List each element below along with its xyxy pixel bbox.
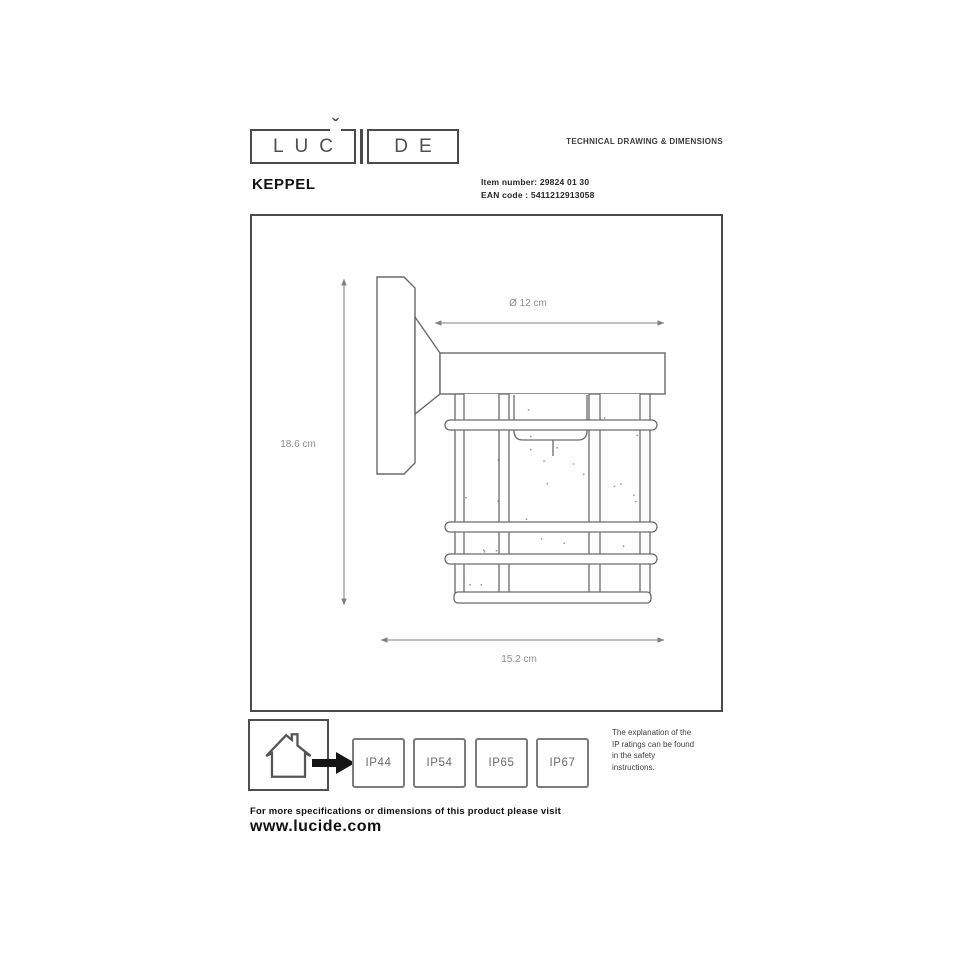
footer-note: For more specifications or dimensions of… <box>250 806 561 817</box>
ip-note-line: IP ratings can be found <box>612 739 730 751</box>
ip-note-line: in the safety <box>612 750 730 762</box>
ip-rating-box-ip44: IP44 <box>352 738 405 788</box>
spec-sheet-page: LUC DE ˇ TECHNICAL DRAWING & DIMENSIONS … <box>0 0 970 971</box>
website-link[interactable]: www.lucide.com <box>250 818 382 836</box>
ip-ratings-note: The explanation of the IP ratings can be… <box>612 727 730 773</box>
item-number-value: 29824 01 30 <box>540 177 589 187</box>
product-title: KEPPEL <box>252 176 316 193</box>
mounting-bracket-shape <box>415 317 440 414</box>
ip-rating-box-ip65: IP65 <box>475 738 528 788</box>
wall-lamp-drawing <box>377 277 665 600</box>
ip-note-line: instructions. <box>612 762 730 774</box>
logo-caron-mark: ˇ <box>330 120 341 134</box>
logo-letters-left: LUC <box>273 137 344 156</box>
logo-box-left: LUC <box>250 129 356 164</box>
document-type-title: TECHNICAL DRAWING & DIMENSIONS <box>500 137 723 146</box>
ip-rating-label: IP44 <box>365 757 391 769</box>
ip-note-line: The explanation of the <box>612 727 730 739</box>
item-number-label: Item number: <box>481 177 537 187</box>
logo-box-right: DE <box>367 129 459 164</box>
cage-band-lower <box>445 554 657 564</box>
lamp-bottom-rim <box>454 592 651 603</box>
ean-value: 5411212913058 <box>531 190 595 200</box>
arrow-icon <box>312 750 356 776</box>
technical-drawing-svg: Ø 12 cm 18.6 cm 15.2 cm <box>252 216 721 710</box>
dimension-label-diameter: Ø 12 cm <box>509 298 547 309</box>
item-number-row: Item number: 29824 01 30 <box>481 176 595 189</box>
logo-letters-right: DE <box>394 137 442 156</box>
ean-row: EAN code : 5411212913058 <box>481 189 595 202</box>
drawing-frame: Ø 12 cm 18.6 cm 15.2 cm <box>250 214 723 712</box>
dimension-label-height: 18.6 cm <box>280 439 316 450</box>
cage-band-top <box>445 420 657 430</box>
ip-rating-box-ip54: IP54 <box>413 738 466 788</box>
ip-rating-label: IP65 <box>488 757 514 769</box>
ip-rating-label: IP67 <box>549 757 575 769</box>
wall-plate-shape <box>377 277 415 474</box>
lamp-lid-shape <box>440 353 665 394</box>
ean-label: EAN code : <box>481 190 528 200</box>
product-codes: Item number: 29824 01 30 EAN code : 5411… <box>481 176 595 202</box>
dimension-label-depth: 15.2 cm <box>501 654 537 665</box>
lucide-logo: LUC DE ˇ <box>250 129 459 164</box>
ip-rating-label: IP54 <box>426 757 452 769</box>
cage-band-middle <box>445 522 657 532</box>
logo-i-bar <box>360 129 363 164</box>
ip-rating-box-ip67: IP67 <box>536 738 589 788</box>
